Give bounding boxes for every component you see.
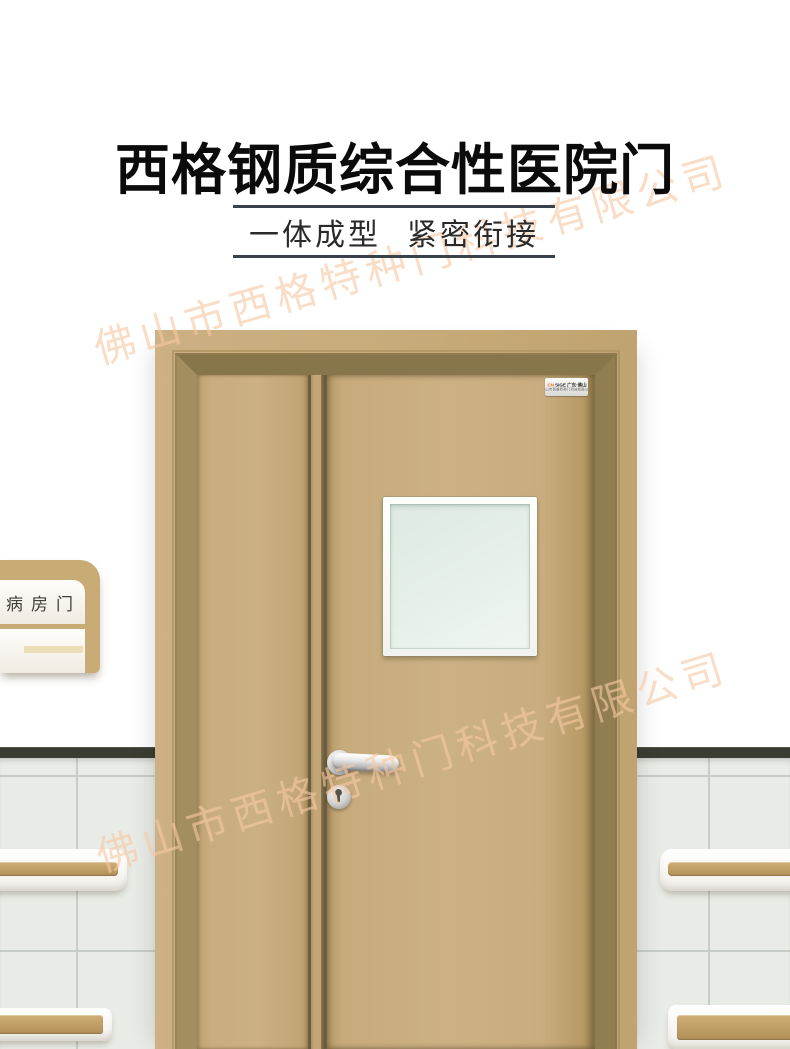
brand-plate-logo: CN [547, 383, 554, 388]
subtitle-right-text: 紧密衔接 [407, 210, 539, 254]
keyhole-slot-icon [337, 794, 340, 802]
handrail-right [660, 849, 790, 891]
lock-cylinder [327, 785, 351, 809]
ward-sign-panel: 病房门 [0, 580, 85, 624]
handrail-left [0, 849, 127, 891]
brand-plate-line2: 佛山市西格特种门科技有限公司 [545, 388, 588, 391]
skirting-rail-right [668, 1005, 790, 1049]
skirting-rail-left [0, 1008, 112, 1041]
brand-plate-line1-text: SIGE 广东·佛山 [553, 383, 586, 388]
door-leaf-small [197, 375, 308, 1049]
ward-sign-panel-lower [0, 629, 85, 673]
skirting-rail-right-bar [677, 1015, 790, 1040]
door-leaves: CN SIGE 广东·佛山 佛山市西格特种门科技有限公司 [197, 375, 595, 1049]
subtitle-divider: 一体成型 紧密衔接 [233, 205, 555, 258]
brand-plate-text: CN SIGE 广东·佛山 佛山市西格特种门科技有限公司 [545, 383, 588, 392]
door-assembly: CN SIGE 广东·佛山 佛山市西格特种门科技有限公司 [155, 330, 637, 1049]
window-glass [390, 504, 530, 649]
skirting-rail-left-bar [0, 1015, 103, 1034]
subtitle-left-text: 一体成型 [249, 210, 381, 254]
door-window [383, 497, 537, 656]
dado-rail-right [637, 747, 790, 758]
brand-plate: CN SIGE 广东·佛山 佛山市西格特种门科技有限公司 [545, 378, 588, 396]
door-astragal [308, 375, 327, 1049]
dado-rail-left [0, 747, 155, 758]
ward-sign: 病房门 [0, 560, 100, 673]
handrail-right-bar [668, 862, 790, 876]
door-handle-lever [332, 752, 400, 772]
product-banner: 西格钢质综合性医院门 一体成型 紧密衔接 病房门 [0, 0, 790, 1049]
ward-sign-label: 病房门 [0, 590, 81, 615]
ward-sign-stripe [24, 646, 83, 653]
tile-wall-left [0, 758, 155, 1049]
handrail-left-bar [0, 862, 118, 876]
door-leaf-main [327, 375, 595, 1049]
page-title: 西格钢质综合性医院门 [0, 137, 790, 203]
